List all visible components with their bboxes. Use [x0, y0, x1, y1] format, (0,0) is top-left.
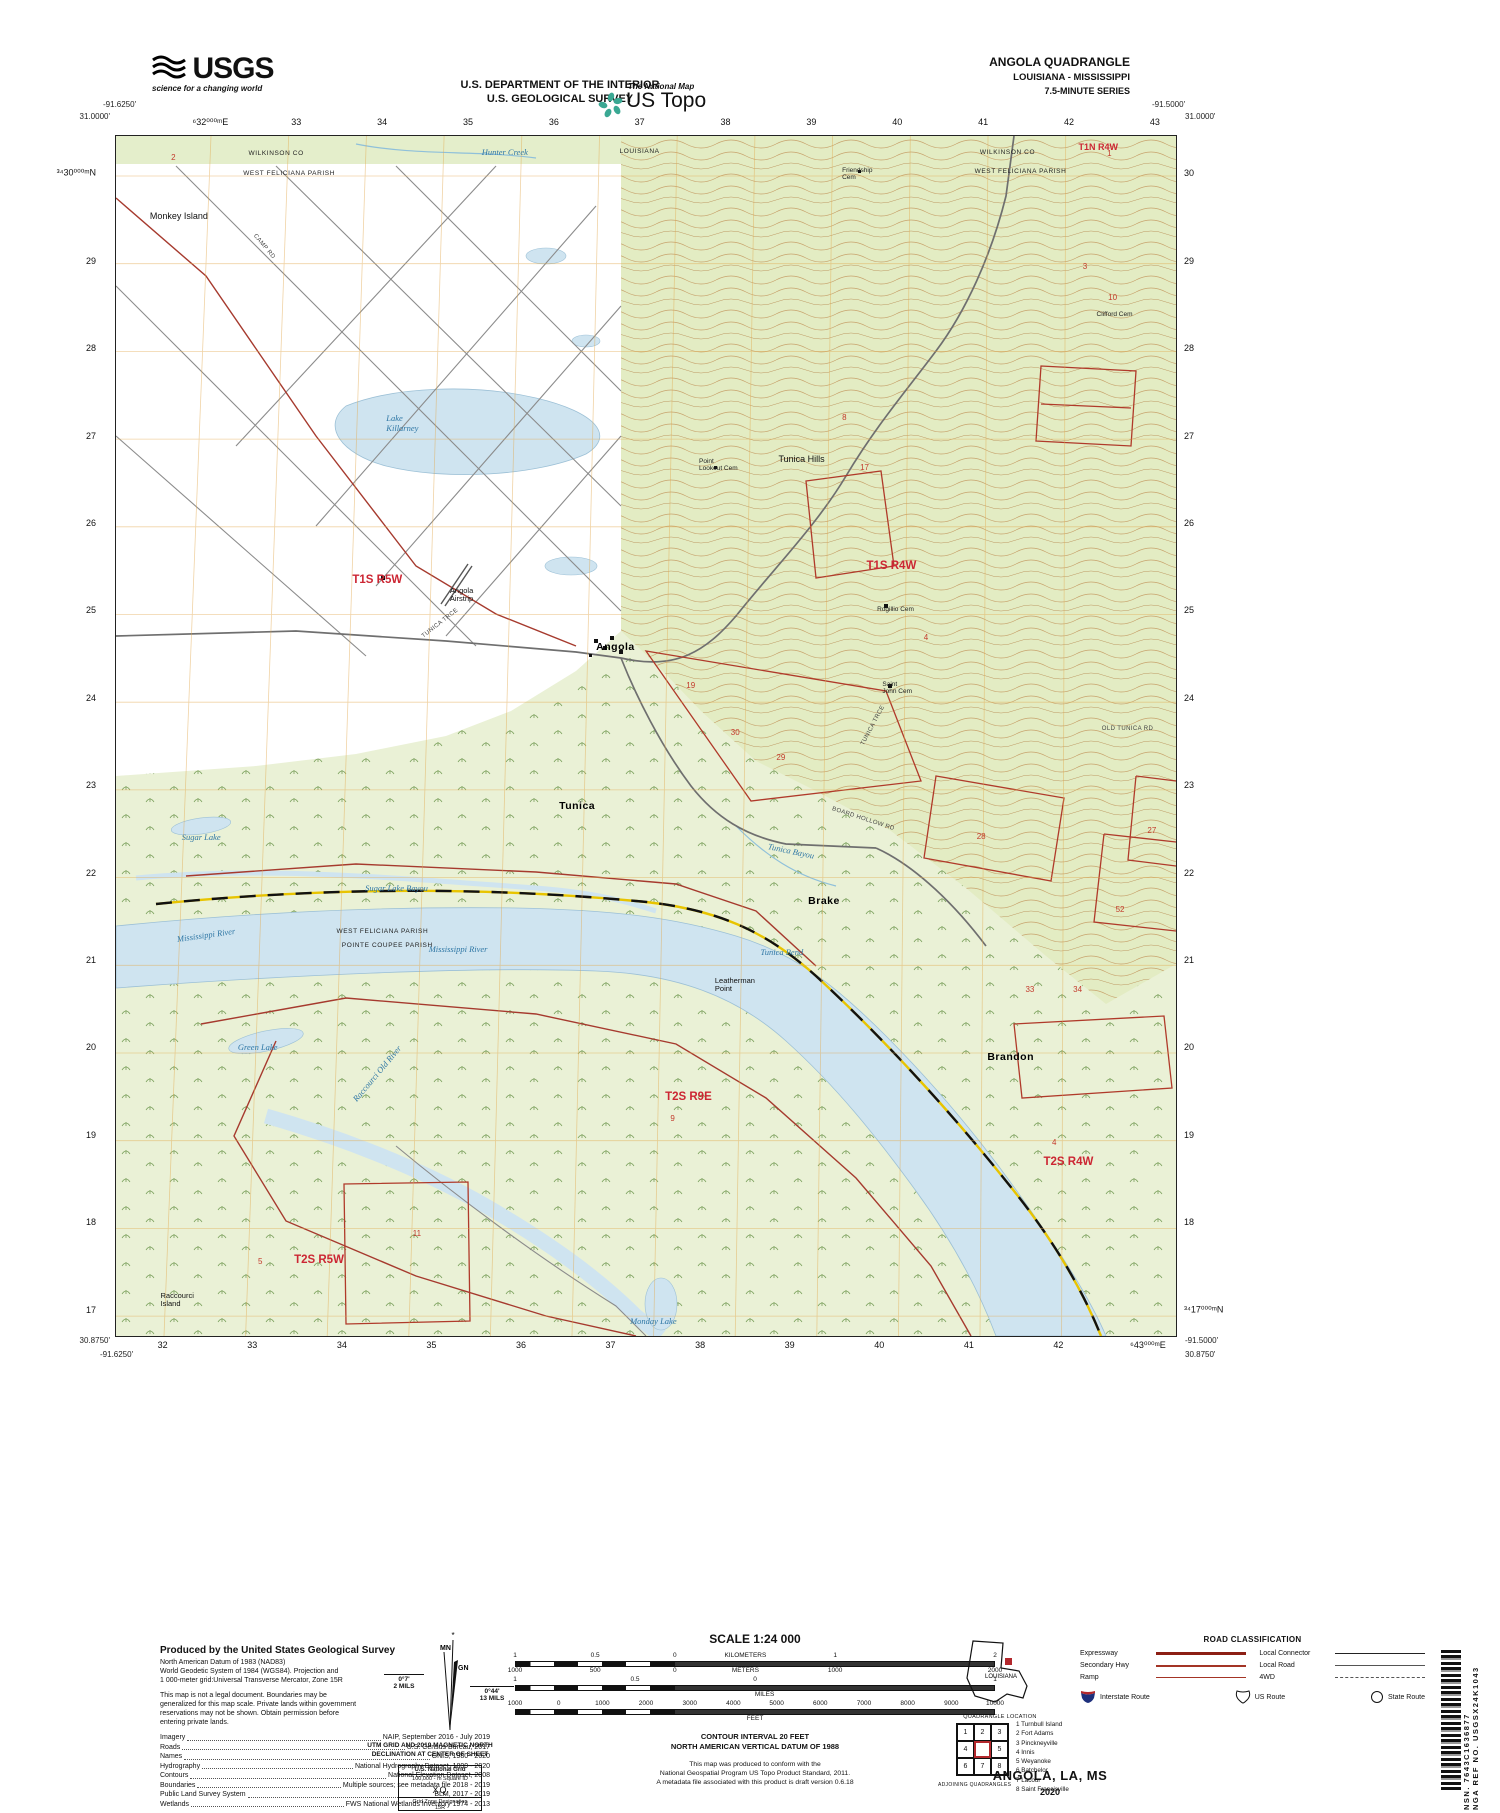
grid-number: 40 — [892, 117, 902, 127]
map-label: WEST FELICIANA PARISH — [975, 168, 1067, 175]
grid-number: 28 — [1184, 343, 1194, 353]
map-label: Angola — [596, 642, 635, 654]
map-label: T2S R9E — [665, 1091, 712, 1104]
map-label: Monday Lake — [630, 1317, 677, 1326]
coord-top-right-lat: 31.0000' — [1185, 112, 1215, 121]
grid-number: 29 — [1184, 256, 1194, 266]
us-national-grid-box: U.S. National Grid 100,000 - m Square ID… — [398, 1765, 482, 1811]
grid-number: 27 — [1184, 431, 1194, 441]
louisiana-outline-map: LOUISIANA — [961, 1638, 1039, 1708]
road-class-row: Local Road — [1259, 1662, 1425, 1669]
adjoining-name: 4 Innis — [1016, 1748, 1136, 1757]
map-label: T2S R4W — [1044, 1156, 1094, 1169]
map-label: Leatherman Point — [715, 977, 755, 994]
road-class-left-column: ExpresswaySecondary HwyRamp — [1080, 1650, 1246, 1686]
road-class-row: Secondary Hwy — [1080, 1662, 1246, 1669]
grid-numbers-right: 30292827262524232221201918³⁴17⁰⁰⁰ᵐN — [1180, 135, 1290, 1335]
map-label: LOUISIANA — [620, 148, 660, 155]
map-label: T1S R4W — [866, 560, 916, 573]
adjoining-name: 5 Weyanoke — [1016, 1757, 1136, 1766]
louisiana-label: LOUISIANA — [985, 1674, 1017, 1680]
contour-interval-note: CONTOUR INTERVAL 20 FEET NORTH AMERICAN … — [515, 1732, 995, 1752]
map-label: Friendship Cem — [842, 167, 872, 181]
grid-number: 22 — [86, 868, 96, 878]
usgs-wave-icon — [152, 54, 186, 85]
grid-number: 42 — [1053, 1340, 1063, 1350]
grid-number: 35 — [426, 1340, 436, 1350]
map-label: T2S R5W — [294, 1254, 344, 1267]
map-label: WILKINSON CO — [249, 150, 304, 157]
adjoining-name: 3 Pinckneyville — [1016, 1739, 1136, 1748]
grid-number: 38 — [721, 117, 731, 127]
map-label: 1 — [1107, 150, 1111, 159]
barcode — [1441, 1650, 1461, 1790]
grid-number: 25 — [1184, 605, 1194, 615]
map-label: 33 — [1025, 986, 1034, 995]
gn-declination: 0°7'2 MILS — [384, 1674, 424, 1690]
conformance-note: This map was produced to conform with th… — [515, 1760, 995, 1787]
grid-number: 43 — [1150, 117, 1160, 127]
road-classification-title: ROAD CLASSIFICATION — [1080, 1635, 1425, 1644]
grid-number: 18 — [1184, 1217, 1194, 1227]
map-label: 17 — [860, 464, 869, 473]
adjoining-name: 1 Turnbull Island — [1016, 1720, 1136, 1729]
map-label: Point Lookout Cem — [699, 458, 738, 472]
map-label: Tunica Bayou — [767, 842, 815, 861]
grid-number: 24 — [86, 693, 96, 703]
map-label: Tunica — [559, 801, 595, 813]
grid-number: 27 — [86, 431, 96, 441]
grid-number: 29 — [86, 256, 96, 266]
map-label: Sugar Lake — [182, 833, 221, 842]
coord-top-right-lon: -91.5000' — [1152, 100, 1185, 109]
map-label: Clifford Cem — [1097, 311, 1133, 318]
us-route-legend: US Route — [1235, 1690, 1285, 1704]
ustopo-logo: The National Map US Topo — [598, 82, 718, 113]
state-route-legend: State Route — [1370, 1690, 1425, 1704]
map-label: Rogillio Cem — [877, 606, 914, 613]
map-label: 8 — [842, 414, 846, 423]
natgrid-zone: 15R — [399, 1805, 481, 1811]
grid-number: 42 — [1064, 117, 1074, 127]
map-label: WEST FELICIANA PARISH — [336, 928, 428, 935]
map-label: 4 — [924, 634, 928, 643]
grid-number: 35 — [463, 117, 473, 127]
grid-number: 32 — [158, 1340, 168, 1350]
grid-number: 21 — [86, 955, 96, 965]
usgs-logo: USGS science for a changing world — [152, 52, 362, 93]
state-route-circle-icon — [1370, 1690, 1384, 1704]
grid-number: 23 — [86, 780, 96, 790]
grid-number: 24 — [1184, 693, 1194, 703]
map-label: T1N R4W — [1078, 143, 1118, 153]
coord-top-left-lat: 31.0000' — [40, 112, 110, 121]
grid-number: 41 — [964, 1340, 974, 1350]
map-label: TUNICA TRCE — [860, 705, 887, 747]
usgs-topo-sheet: { "colors":{"woodland":"#e3ecc3","wetlan… — [0, 0, 1500, 1813]
adjoining-name: 2 Fort Adams — [1016, 1729, 1136, 1738]
grid-number: ³⁴30⁰⁰⁰ᵐN — [57, 168, 96, 179]
grid-number: 37 — [606, 1340, 616, 1350]
natgrid-subtitle: 100,000 - m Square ID — [399, 1775, 481, 1782]
grid-numbers-top: ⁶32⁰⁰⁰ᵐE3334353637383940414243 — [115, 117, 1175, 129]
grid-number: 39 — [785, 1340, 795, 1350]
grid-number: 21 — [1184, 955, 1194, 965]
adjoining-cell: 4 — [957, 1741, 974, 1758]
road-class-right-column: Local ConnectorLocal Road4WD — [1259, 1650, 1425, 1686]
map-label: Brake — [808, 896, 840, 908]
road-class-row: 4WD — [1259, 1674, 1425, 1681]
map-label: Raccourci Island — [161, 1292, 194, 1309]
grid-number: 38 — [695, 1340, 705, 1350]
map-label: Tunica Bend — [760, 948, 803, 957]
map-label: Saint John Cem — [882, 681, 912, 695]
map-label: WILKINSON CO — [980, 149, 1035, 156]
adjoining-cell: 1 — [957, 1724, 974, 1741]
svg-text:MN: MN — [440, 1645, 451, 1652]
grid-number: ⁶32⁰⁰⁰ᵐE — [193, 117, 229, 128]
quadrangle-location-block: LOUISIANA QUADRANGLE LOCATION — [952, 1638, 1048, 1720]
grid-number: 40 — [874, 1340, 884, 1350]
usgs-brand: USGS — [192, 52, 273, 86]
map-label: 29 — [776, 754, 785, 763]
sheet-name: ANGOLA, LA, MS — [950, 1768, 1150, 1783]
coord-bottom-right-lon: -91.5000' — [1185, 1336, 1218, 1345]
nsn-number: NSN. 7643C1636877 — [1462, 1600, 1471, 1810]
grid-number: 18 — [86, 1217, 96, 1227]
quad-subtitle: LOUISIANA - MISSISSIPPI — [880, 72, 1130, 83]
quad-title: ANGOLA QUADRANGLE — [880, 55, 1130, 69]
road-classification-legend: ROAD CLASSIFICATION ExpresswaySecondary … — [1080, 1635, 1425, 1704]
map-label: 28 — [977, 833, 986, 842]
grid-number: 19 — [86, 1130, 96, 1140]
us-route-shield-icon — [1235, 1690, 1251, 1704]
natgrid-zone-label: Grid Zone Designation — [399, 1797, 481, 1805]
adjoining-cell: 3 — [991, 1724, 1008, 1741]
declination-diagram: * MN GN 0°7'2 MILS 0°44'13 MILS — [398, 1630, 498, 1738]
map-label: Lake Killarney — [386, 414, 418, 433]
grid-number: 26 — [86, 518, 96, 528]
map-label: T1S R5W — [352, 574, 402, 587]
adjoining-cell: 5 — [991, 1741, 1008, 1758]
map-label: Raccourci Old River — [351, 1044, 403, 1104]
barcode-text: NSN. 7643C1636877 NGA REF NO. USGSX24K10… — [1462, 1600, 1480, 1810]
map-label: 2 — [171, 154, 175, 163]
map-label: Sugar Lake Bayou — [365, 884, 428, 893]
map-label: Mississippi River — [177, 927, 237, 944]
grid-number: 33 — [291, 117, 301, 127]
grid-number: 20 — [1184, 1042, 1194, 1052]
grid-number: 33 — [247, 1340, 257, 1350]
map-label: 10 — [1108, 294, 1117, 303]
grid-number: 34 — [377, 117, 387, 127]
quad-series: 7.5-MINUTE SERIES — [880, 86, 1130, 96]
grid-number: 36 — [516, 1340, 526, 1350]
grid-number: 19 — [1184, 1130, 1194, 1140]
sheet-year: 2020 — [950, 1787, 1150, 1797]
map-label: 4 — [1052, 1139, 1056, 1148]
map-label: OLD TUNICA RD — [1102, 726, 1153, 733]
coord-bottom-left-lat: 30.8750' — [40, 1336, 110, 1345]
grid-number: 37 — [635, 117, 645, 127]
grid-numbers-left: ³⁴30⁰⁰⁰ᵐN29282726252423222120191817 — [0, 135, 110, 1335]
scale-block: SCALE 1:24 000 10.50KILOMETERS1210005000… — [515, 1632, 995, 1787]
grid-number: 41 — [978, 117, 988, 127]
map-label: Tunica Hills — [779, 455, 825, 465]
nga-ref-number: NGA REF NO. USGSX24K1043 — [1471, 1600, 1480, 1810]
grid-number: 36 — [549, 117, 559, 127]
sheet-title-block: ANGOLA, LA, MS 2020 — [950, 1768, 1150, 1797]
map-label: Green Lake — [238, 1043, 278, 1052]
map-label: 52 — [1116, 906, 1125, 915]
adjoining-cell: 2 — [974, 1724, 991, 1741]
map-label: 27 — [1147, 827, 1156, 836]
grid-number: 28 — [86, 343, 96, 353]
road-class-row: Expressway — [1080, 1650, 1246, 1657]
ustopo-brand: US Topo — [626, 89, 718, 113]
grid-number: 22 — [1184, 868, 1194, 878]
map-label: 11 — [413, 1230, 421, 1239]
grid-number: 17 — [86, 1305, 96, 1315]
svg-text:*: * — [451, 1631, 454, 1640]
natgrid-square-id: XQ — [399, 1782, 481, 1797]
map-label: 3 — [1083, 263, 1087, 272]
usgs-tagline: science for a changing world — [152, 84, 362, 93]
svg-text:GN: GN — [458, 1665, 469, 1672]
map-label: BOARD HOLLOW RD — [830, 806, 894, 832]
grid-number: ⁶43⁰⁰⁰ᵐE — [1130, 1340, 1166, 1351]
map-label: POINTE COUPEE PARISH — [342, 942, 433, 949]
map-label: CAMP RD — [251, 233, 276, 261]
coord-top-left-lon: -91.6250' — [103, 100, 136, 109]
map-label: Monkey Island — [150, 212, 208, 222]
quadrangle-header: ANGOLA QUADRANGLE LOUISIANA - MISSISSIPP… — [880, 55, 1130, 96]
map-label: Brandon — [987, 1052, 1034, 1064]
map-collar-footer: Produced by the United States Geological… — [0, 1590, 1500, 1813]
map-label: 5 — [258, 1258, 262, 1267]
scale-bars: 10.50KILOMETERS1210005000METERS100020001… — [515, 1652, 995, 1724]
map-label: Hunter Creek — [482, 148, 528, 157]
declination-caption: UTM GRID AND 2019 MAGNETIC NORTH DECLINA… — [330, 1742, 530, 1759]
road-class-row: Ramp — [1080, 1674, 1246, 1681]
grid-number: 30 — [1184, 168, 1194, 178]
map-label: 34 — [1073, 986, 1082, 995]
grid-number: 26 — [1184, 518, 1194, 528]
map-label: TUNICA TRCE — [421, 607, 460, 639]
grid-number: 20 — [86, 1042, 96, 1052]
map-label: WEST FELICIANA PARISH — [243, 170, 335, 177]
grid-number: 25 — [86, 605, 96, 615]
adjoining-cell — [974, 1741, 991, 1758]
scale-title: SCALE 1:24 000 — [515, 1632, 995, 1646]
grid-number: 23 — [1184, 780, 1194, 790]
road-class-row: Local Connector — [1259, 1650, 1425, 1657]
quad-location-marker — [1005, 1658, 1012, 1665]
map-label: 9 — [670, 1115, 674, 1124]
grid-number: ³⁴17⁰⁰⁰ᵐN — [1184, 1304, 1223, 1315]
interstate-shield-icon — [1080, 1690, 1096, 1704]
map-label: 30 — [731, 729, 740, 738]
topo-map-image: WILKINSON COWEST FELICIANA PARISHHunter … — [115, 135, 1177, 1337]
natgrid-title: U.S. National Grid — [399, 1766, 481, 1775]
map-label: 19 — [686, 682, 695, 691]
coord-bottom-right-lat: 30.8750' — [1185, 1350, 1215, 1359]
map-label-layer: WILKINSON COWEST FELICIANA PARISHHunter … — [116, 136, 1176, 1336]
grid-number: 34 — [337, 1340, 347, 1350]
map-label: Mississippi River — [429, 945, 488, 954]
grid-number: 39 — [806, 117, 816, 127]
map-label: Angola Airstrip — [450, 587, 473, 604]
interstate-route-legend: Interstate Route — [1080, 1690, 1150, 1704]
grid-numbers-bottom: 3233343536373839404142⁶43⁰⁰⁰ᵐE — [115, 1340, 1175, 1352]
